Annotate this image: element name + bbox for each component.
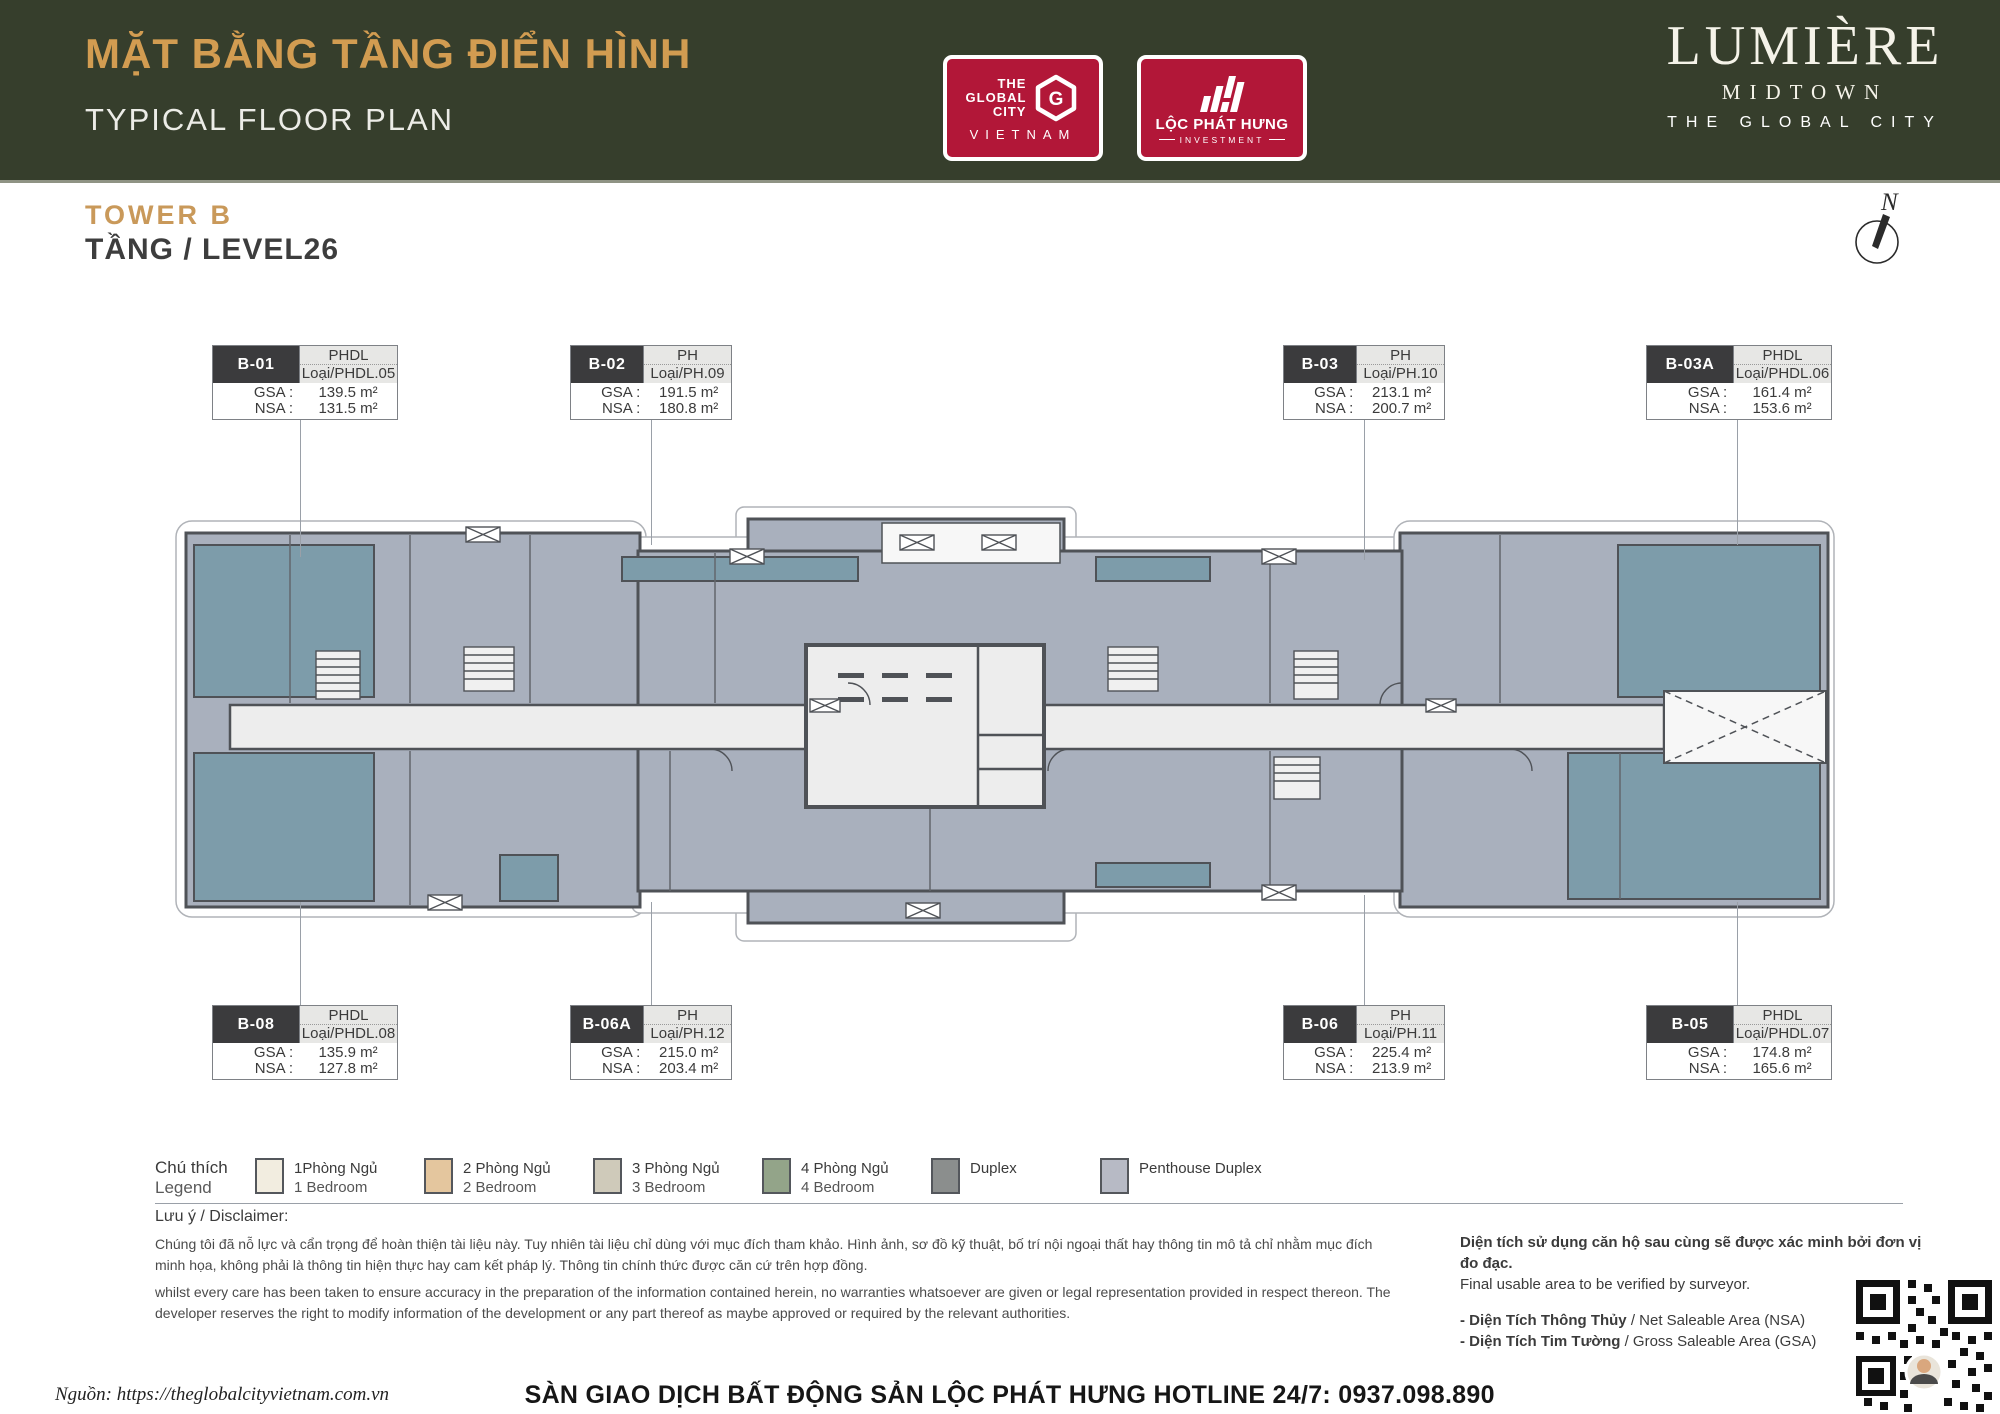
footer-hotline: SÀN GIAO DỊCH BẤT ĐỘNG SẢN LỘC PHÁT HƯNG…	[525, 1381, 1495, 1410]
legend-label-vi: 3 Phòng Ngủ	[632, 1159, 720, 1178]
legend-label-en: 2 Bedroom	[463, 1178, 551, 1197]
legend-label-vi: 1Phòng Ngủ	[294, 1159, 377, 1178]
gsa-value: 225.4 m²	[1359, 1044, 1444, 1060]
qr-avatar	[1906, 1354, 1942, 1390]
unit-loai: Loại/PH.11	[1357, 1025, 1444, 1043]
unit-code: B-03A	[1647, 346, 1733, 383]
legend-label-en: 3 Bedroom	[632, 1178, 720, 1197]
brand-midtown: MIDTOWN	[1640, 80, 1970, 105]
unit-type: PHDL	[1734, 1006, 1831, 1025]
unit-loai: Loại/PH.09	[644, 365, 731, 383]
nsa-label: NSA :	[1284, 1060, 1359, 1076]
unit-code: B-05	[1647, 1006, 1733, 1043]
legend-title-vi: Chú thích	[155, 1158, 255, 1178]
qr-code	[1854, 1280, 1994, 1412]
unit-info-box-b01: B-01 PHDL Loại/PHDL.05 GSA :139.5 m² NSA…	[212, 345, 398, 420]
gsa-label: GSA :	[1284, 1044, 1359, 1060]
nsa-value: 165.6 m²	[1733, 1060, 1831, 1076]
gsa-value: 191.5 m²	[646, 384, 731, 400]
unit-code: B-03	[1284, 346, 1356, 383]
unit-type: PHDL	[300, 1006, 397, 1025]
unit-loai: Loại/PHDL.05	[300, 365, 397, 383]
nsa-label: NSA :	[1647, 1060, 1733, 1076]
gsa-label: GSA :	[213, 384, 299, 400]
logo-loc-phat-hung: LỘC PHÁT HƯNG INVESTMENT	[1137, 55, 1307, 161]
unit-type: PH	[1357, 1006, 1444, 1025]
tower-title: TOWER B	[85, 200, 233, 231]
unit-info-box-b06a: B-06A PH Loại/PH.12 GSA :215.0 m² NSA :2…	[570, 1005, 732, 1080]
legend-swatch	[424, 1158, 453, 1194]
gsa-label: GSA :	[1284, 384, 1359, 400]
unit-type: PH	[644, 346, 731, 365]
legend-swatch	[255, 1158, 284, 1194]
legend: Chú thích Legend 1Phòng Ngủ1 Bedroom 2 P…	[155, 1158, 1329, 1198]
nsa-value: 200.7 m²	[1359, 400, 1444, 416]
north-compass-icon: N	[1845, 188, 1915, 273]
unit-info-box-b06: B-06 PH Loại/PH.11 GSA :225.4 m² NSA :21…	[1283, 1005, 1445, 1080]
legend-label-vi: 4 Phòng Ngủ	[801, 1159, 889, 1178]
area-note-vi: Diện tích sử dụng căn hộ sau cùng sẽ đượ…	[1460, 1232, 1940, 1274]
unit-loai: Loại/PH.10	[1357, 365, 1444, 383]
legend-item: Duplex	[931, 1158, 1091, 1198]
gc-line3: CITY	[966, 105, 1027, 119]
unit-code: B-06A	[571, 1006, 643, 1043]
nsa-value: 180.8 m²	[646, 400, 731, 416]
disclaimer-heading: Lưu ý / Disclaimer:	[155, 1208, 288, 1226]
unit-info-box-b03a: B-03A PHDL Loại/PHDL.06 GSA :161.4 m² NS…	[1646, 345, 1832, 420]
nsa-value: 213.9 m²	[1359, 1060, 1444, 1076]
unit-type: PH	[644, 1006, 731, 1025]
page-title-en: TYPICAL FLOOR PLAN	[85, 102, 454, 138]
legend-label-vi: Penthouse Duplex	[1139, 1159, 1262, 1178]
brand-lumiere-block: LUMIÈRE MIDTOWN THE GLOBAL CITY	[1640, 16, 1970, 132]
unit-type: PHDL	[1734, 346, 1831, 365]
unit-type: PH	[1357, 346, 1444, 365]
gsa-label: GSA :	[213, 1044, 299, 1060]
gc-line2: GLOBAL	[966, 91, 1027, 105]
gc-vietnam: VIETNAM	[970, 127, 1077, 142]
gsa-value: 174.8 m²	[1733, 1044, 1831, 1060]
page-title-vi: MẶT BẰNG TẦNG ĐIỂN HÌNH	[85, 30, 691, 78]
brand-lumiere: LUMIÈRE	[1640, 16, 1970, 76]
nsa-label: NSA :	[1284, 400, 1359, 416]
lph-bars-icon	[1196, 72, 1248, 114]
gsa-value: 215.0 m²	[646, 1044, 731, 1060]
leader-line	[1364, 417, 1365, 560]
floor-plan	[170, 505, 1840, 945]
disclaimer-en: whilst every care has been taken to ensu…	[155, 1282, 1395, 1324]
gsa-value: 139.5 m²	[299, 384, 397, 400]
legend-label-en: 4 Bedroom	[801, 1178, 889, 1197]
unit-code: B-02	[571, 346, 643, 383]
page-header: MẶT BẰNG TẦNG ĐIỂN HÌNH TYPICAL FLOOR PL…	[0, 0, 2000, 183]
nsa-value: 203.4 m²	[646, 1060, 731, 1076]
gsa-label: GSA :	[571, 384, 646, 400]
leader-line	[651, 417, 652, 545]
gsa-label: GSA :	[1647, 1044, 1733, 1060]
legend-item: 4 Phòng Ngủ4 Bedroom	[762, 1158, 922, 1198]
leader-line	[1364, 895, 1365, 1005]
unit-loai: Loại/PHDL.08	[300, 1025, 397, 1043]
plan-cross-zone	[1664, 691, 1826, 763]
svg-text:G: G	[1049, 89, 1064, 110]
lph-investment: INVESTMENT	[1159, 135, 1286, 145]
brand-global-city: THE GLOBAL CITY	[1640, 114, 1970, 132]
unit-loai: Loại/PH.12	[644, 1025, 731, 1043]
unit-info-box-b08: B-08 PHDL Loại/PHDL.08 GSA :135.9 m² NSA…	[212, 1005, 398, 1080]
gsa-label: GSA :	[1647, 384, 1733, 400]
legend-swatch	[1100, 1158, 1129, 1194]
nsa-value: 127.8 m²	[299, 1060, 397, 1076]
lph-name: LỘC PHÁT HƯNG	[1155, 116, 1288, 133]
legend-label-vi: Duplex	[970, 1159, 1017, 1178]
unit-loai: Loại/PHDL.07	[1734, 1025, 1831, 1043]
nsa-value: 131.5 m²	[299, 400, 397, 416]
svg-text:N: N	[1880, 189, 1899, 216]
legend-item: Penthouse Duplex	[1100, 1158, 1320, 1198]
legend-label-vi: 2 Phòng Ngủ	[463, 1159, 551, 1178]
legend-item: 1Phòng Ngủ1 Bedroom	[255, 1158, 415, 1198]
unit-info-box-b05: B-05 PHDL Loại/PHDL.07 GSA :174.8 m² NSA…	[1646, 1005, 1832, 1080]
gsa-value: 161.4 m²	[1733, 384, 1831, 400]
logo-global-city: THE GLOBAL CITY G VIETNAM	[943, 55, 1103, 161]
legend-item: 3 Phòng Ngủ3 Bedroom	[593, 1158, 753, 1198]
gsa-value: 135.9 m²	[299, 1044, 397, 1060]
nsa-label: NSA :	[213, 1060, 299, 1076]
footer-source: Nguồn: https://theglobalcityvietnam.com.…	[55, 1384, 389, 1406]
nsa-label: NSA :	[213, 400, 299, 416]
unit-code: B-08	[213, 1006, 299, 1043]
leader-line	[300, 902, 301, 1005]
leader-line	[300, 417, 301, 557]
gsa-label: GSA :	[571, 1044, 646, 1060]
legend-swatch	[593, 1158, 622, 1194]
unit-loai: Loại/PHDL.06	[1734, 365, 1831, 383]
level-title: TẦNG / LEVEL26	[85, 233, 339, 267]
leader-line	[1737, 417, 1738, 545]
unit-code: B-01	[213, 346, 299, 383]
nsa-label: NSA :	[571, 1060, 646, 1076]
gsa-value: 213.1 m²	[1359, 384, 1444, 400]
legend-label-en: 1 Bedroom	[294, 1178, 377, 1197]
legend-swatch	[931, 1158, 960, 1194]
gc-line1: THE	[966, 77, 1027, 91]
unit-type: PHDL	[300, 346, 397, 365]
unit-code: B-06	[1284, 1006, 1356, 1043]
disclaimer-vi: Chúng tôi đã nỗ lực và cẩn trọng để hoàn…	[155, 1234, 1395, 1276]
legend-item: 2 Phòng Ngủ2 Bedroom	[424, 1158, 584, 1198]
divider-line	[155, 1203, 1903, 1204]
nsa-label: NSA :	[1647, 400, 1733, 416]
legend-swatch	[762, 1158, 791, 1194]
unit-info-box-b02: B-02 PH Loại/PH.09 GSA :191.5 m² NSA :18…	[570, 345, 732, 420]
leader-line	[651, 902, 652, 1005]
plan-core	[806, 645, 1044, 807]
legend-title-en: Legend	[155, 1178, 255, 1198]
unit-info-box-b03: B-03 PH Loại/PH.10 GSA :213.1 m² NSA :20…	[1283, 345, 1445, 420]
nsa-label: NSA :	[571, 400, 646, 416]
global-city-hexagon-icon: G	[1032, 74, 1080, 122]
leader-line	[1737, 902, 1738, 1005]
nsa-value: 153.6 m²	[1733, 400, 1831, 416]
